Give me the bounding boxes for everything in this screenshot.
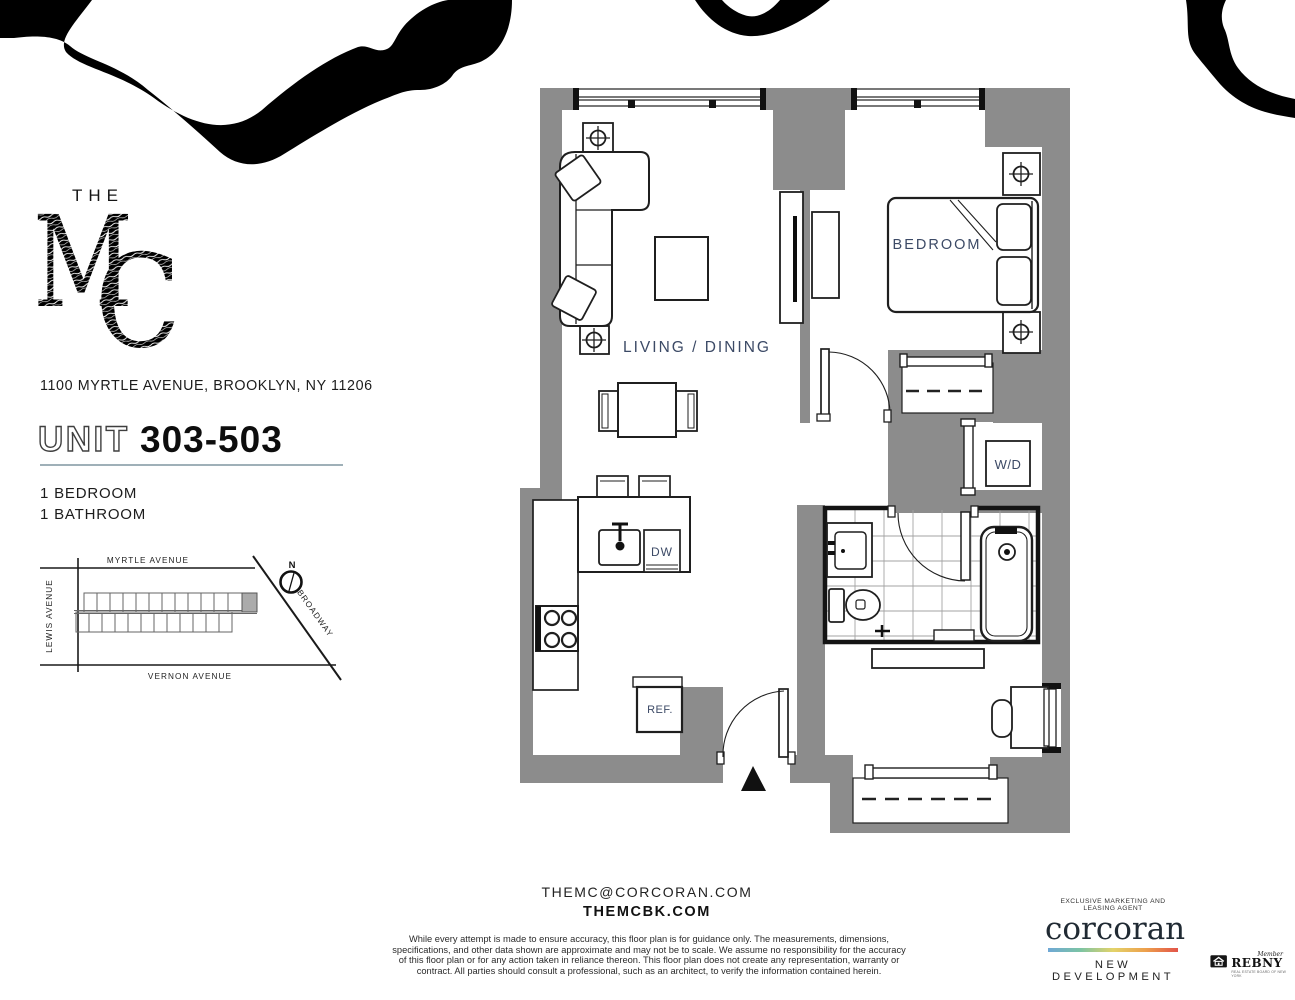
disclaimer-line: While every attempt is made to ensure ac… (369, 934, 929, 945)
unit-label: UNIT (38, 420, 130, 459)
disclaimer-line: of this floor plan or for any action tak… (369, 955, 929, 966)
contact-block: THEMC@CORCORAN.COM THEMCBK.COM (380, 884, 914, 920)
disclaimer-line: contract. All parties should consult a p… (369, 966, 929, 977)
disclaimer-line: specifications, and other data shown are… (369, 945, 929, 956)
tv-screen (793, 216, 797, 302)
brush-stroke-left (0, 0, 512, 164)
room-label-living: LIVING / DINING (623, 339, 771, 356)
unit-number: 303-503 (140, 419, 283, 460)
agent-line: EXCLUSIVE MARKETING AND LEASING AGENT (1045, 898, 1181, 912)
rebny-tagline: REAL ESTATE BOARD OF NEW YORK (1231, 970, 1295, 978)
kitchen: DW REF. (533, 476, 690, 732)
tv-panel (780, 192, 803, 323)
room-label-bedroom: BEDROOM (893, 237, 982, 253)
bed-pillow (997, 257, 1031, 305)
vanity-sink (827, 523, 872, 577)
brush-stroke-center (695, 0, 830, 36)
fixture-symbol-bedroom-bottom (1003, 312, 1040, 353)
spec-bathrooms: 1 BATHROOM (40, 504, 146, 525)
hall-closet (853, 765, 1008, 823)
dishwasher: DW (644, 530, 680, 572)
entry-marker (741, 766, 766, 791)
building-address: 1100 MYRTLE AVENUE, BROOKLYN, NY 11206 (40, 378, 373, 394)
fixture-symbol-living-top (583, 123, 613, 152)
entry-door (717, 689, 795, 764)
refrigerator: REF. (633, 677, 682, 732)
corcoran-gradient-bar (1048, 948, 1178, 952)
washer-dryer-label: W/D (995, 457, 1022, 472)
agent-brand-block: EXCLUSIVE MARKETING AND LEASING AGENT co… (1045, 898, 1181, 983)
rebny-house-icon (1210, 952, 1227, 969)
shower-niche (934, 630, 974, 641)
media-console (812, 212, 839, 298)
bed-pillow (997, 204, 1031, 250)
street-label-broadway: BROADWAY (295, 588, 335, 639)
fixture-symbol-bedroom-top (1003, 153, 1040, 195)
site-map: MYRTLE AVENUE VERNON AVENUE LEWIS AVENUE… (30, 550, 360, 690)
brush-stroke-right (1186, 0, 1295, 118)
toilet (829, 589, 880, 622)
bar-stool (597, 476, 628, 497)
highlighted-unit (242, 593, 257, 612)
spec-bedrooms: 1 BEDROOM (40, 483, 146, 504)
contact-website[interactable]: THEMCBK.COM (380, 904, 914, 920)
mc-logo-c: C (95, 228, 181, 355)
street-label-vernon: VERNON AVENUE (148, 672, 232, 681)
kitchen-sink (599, 524, 640, 565)
coffee-table (655, 237, 708, 300)
street-label-myrtle: MYRTLE AVENUE (107, 556, 189, 565)
hall-bench (872, 649, 984, 668)
living-room (551, 152, 708, 437)
building-footprint (74, 593, 257, 632)
floor-plan: W/D DW (510, 80, 1085, 845)
floor-drain (875, 625, 890, 637)
dishwasher-label: DW (651, 545, 673, 559)
desk-nook (992, 687, 1049, 748)
fixture-symbol-living-bottom (580, 326, 609, 354)
bathtub (981, 527, 1032, 641)
new-development-label: NEW DEVELOPMENT (1045, 959, 1181, 983)
desk-chair (992, 700, 1012, 737)
washer-dryer: W/D (961, 419, 1030, 495)
kitchen-counter (533, 500, 578, 690)
compass-icon: N (281, 560, 302, 593)
contact-email[interactable]: THEMC@CORCORAN.COM (380, 884, 914, 900)
bedroom-furniture (888, 198, 1038, 312)
bedroom-closet (900, 354, 993, 413)
window-bedroom (851, 88, 985, 110)
window-living (573, 88, 766, 110)
compass-north-label: N (289, 560, 296, 571)
bathroom-door (888, 506, 978, 581)
stove (536, 606, 578, 651)
street-label-lewis: LEWIS AVENUE (45, 579, 54, 653)
disclaimer: While every attempt is made to ensure ac… (369, 934, 929, 976)
corcoran-wordmark: corcoran (1045, 913, 1181, 945)
bedroom-door (817, 349, 891, 422)
rebny-name: REBNY (1231, 958, 1295, 969)
refrigerator-label: REF. (647, 704, 673, 716)
unit-specs: 1 BEDROOM 1 BATHROOM (40, 483, 146, 525)
bathroom (825, 506, 1038, 642)
desk (1011, 687, 1048, 748)
divider-line (40, 464, 343, 466)
bar-stool (639, 476, 670, 497)
rebny-block: Member REBNY REAL ESTATE BOARD OF NEW YO… (1210, 952, 1295, 978)
dining-table (618, 383, 676, 437)
mc-logo: M C (25, 170, 205, 355)
unit-title: UNIT 303-503 (38, 414, 358, 462)
